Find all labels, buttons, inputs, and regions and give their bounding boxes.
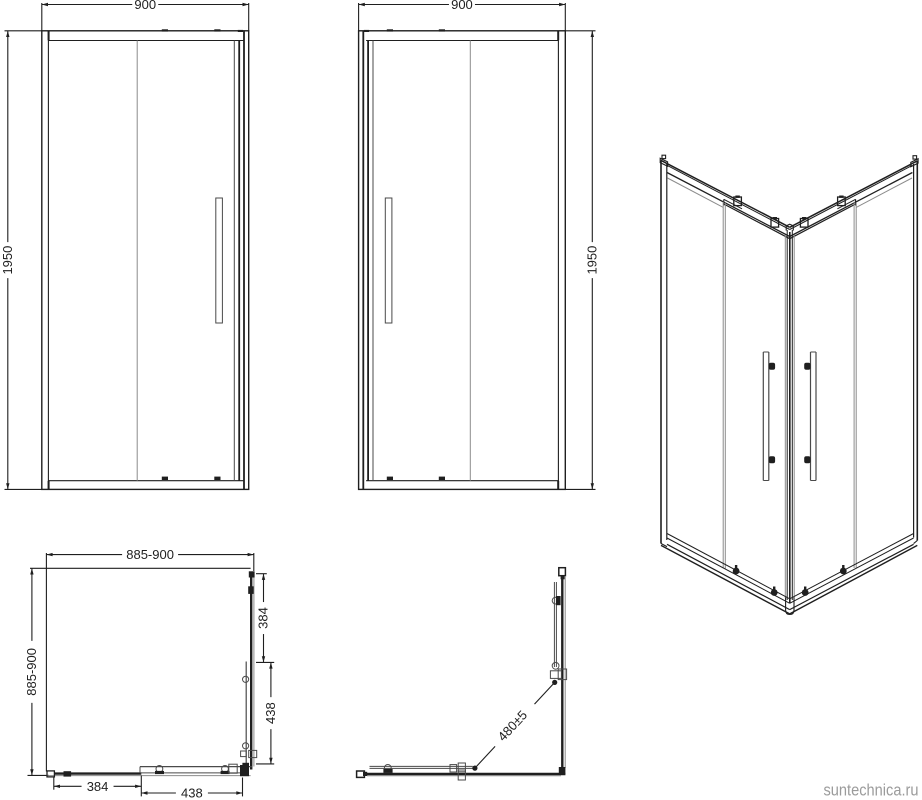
svg-text:438: 438 bbox=[181, 786, 203, 800]
svg-text:suntechnica.ru: suntechnica.ru bbox=[824, 781, 919, 800]
svg-text:1950: 1950 bbox=[0, 246, 15, 275]
svg-text:900: 900 bbox=[134, 0, 156, 12]
svg-text:900: 900 bbox=[451, 0, 473, 12]
svg-text:438: 438 bbox=[263, 702, 278, 724]
svg-text:384: 384 bbox=[256, 607, 271, 629]
svg-text:1950: 1950 bbox=[584, 246, 599, 275]
svg-text:384: 384 bbox=[87, 779, 109, 794]
svg-text:885-900: 885-900 bbox=[24, 648, 39, 696]
svg-text:885-900: 885-900 bbox=[126, 547, 174, 562]
